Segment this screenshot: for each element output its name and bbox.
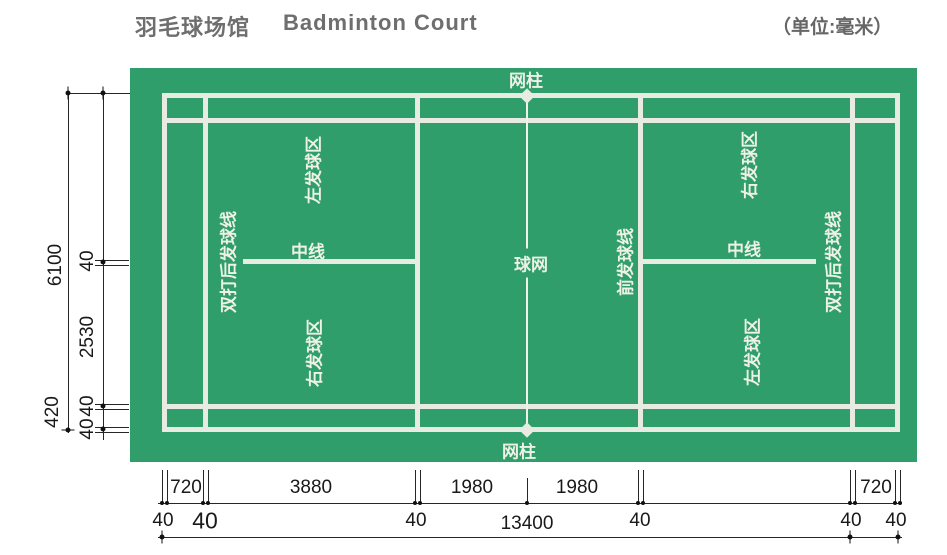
dim-ext-line	[167, 470, 168, 503]
dim-label-40: 40	[629, 510, 650, 532]
unit-label: （单位:毫米）	[772, 12, 892, 39]
net-post-top-label: 网柱	[509, 67, 543, 92]
dim-label-40: 40	[152, 510, 173, 532]
dim-label-720-right: 720	[860, 477, 892, 499]
front-service-line-label: 前发球线	[612, 228, 637, 296]
dim-tick	[418, 501, 422, 505]
dim-tick	[636, 501, 640, 505]
dim-ext-line	[95, 409, 129, 410]
dim-label-40: 40	[885, 510, 906, 532]
dim-label-6100: 6100	[45, 244, 67, 286]
dim-line-left-inner	[103, 93, 104, 440]
zone-top-left-label: 左发球区	[300, 136, 325, 204]
dim-tick	[165, 501, 169, 505]
zone-top-right-label: 右发球区	[736, 131, 761, 199]
dim-label-420: 420	[42, 396, 64, 428]
back-boundary-right	[895, 93, 900, 432]
dim-line-left-outer	[68, 93, 69, 433]
dim-tick	[893, 501, 897, 505]
zone-bottom-right-label: 左发球区	[739, 318, 764, 386]
dim-line-bottom-row1	[158, 503, 902, 504]
dim-tick	[848, 535, 853, 540]
dim-tick	[101, 91, 106, 96]
dim-ext-line	[855, 470, 856, 503]
page-title-en: Badminton Court	[283, 10, 478, 36]
sideline-singles-top	[162, 118, 900, 123]
dim-label-40-center: 40	[77, 250, 99, 271]
dim-tick	[853, 501, 857, 505]
dim-ext-line	[203, 470, 204, 503]
dim-label-40-singles: 40	[77, 395, 99, 416]
dim-tick	[641, 501, 645, 505]
dim-ext-line	[95, 265, 129, 266]
dim-tick	[160, 501, 164, 505]
doubles-long-service-line-left	[203, 93, 208, 432]
dim-label-1980-left: 1980	[451, 477, 493, 499]
dim-tick	[66, 91, 71, 96]
dim-tick	[896, 535, 901, 540]
dim-label-3880: 3880	[290, 477, 332, 499]
dim-tick	[413, 501, 417, 505]
doubles-long-service-right-label: 双打后发球线	[820, 211, 845, 313]
dim-ext-line	[415, 470, 416, 503]
dim-ext-line	[643, 470, 644, 503]
net-label: 球网	[511, 249, 551, 278]
dim-line-bottom-row2	[158, 537, 902, 538]
dim-ext-line-net	[527, 478, 528, 503]
dim-tick	[525, 501, 529, 505]
dim-tick	[101, 427, 106, 432]
back-boundary-left	[162, 93, 167, 432]
short-service-line-left	[415, 93, 420, 432]
dim-tick	[206, 501, 210, 505]
dim-ext-line	[895, 470, 896, 503]
dim-label-2530: 2530	[77, 316, 99, 358]
dim-ext-line	[850, 470, 851, 503]
sideline-singles-bottom	[162, 404, 900, 409]
dim-label-40: 40	[840, 510, 861, 532]
net-post-bottom-label: 网柱	[502, 438, 536, 463]
dim-ext-line	[900, 470, 901, 503]
dim-label-1980-right: 1980	[556, 477, 598, 499]
doubles-long-service-left-label: 双打后发球线	[215, 211, 240, 313]
dim-tick	[898, 501, 902, 505]
dim-ext-line	[162, 470, 163, 503]
page-title-zh: 羽毛球场馆	[135, 10, 250, 42]
dim-tick	[201, 501, 205, 505]
dim-tick	[848, 501, 852, 505]
center-line-right-label: 中线	[727, 236, 761, 261]
dim-ext-line	[208, 470, 209, 503]
dim-tick	[66, 428, 71, 433]
dim-connector-top	[68, 93, 130, 94]
dim-label-40: 40	[405, 510, 426, 532]
dim-tick	[101, 404, 106, 409]
dim-label-720-left: 720	[170, 477, 202, 499]
center-line-left	[243, 259, 415, 264]
doubles-long-service-line-right	[850, 93, 855, 432]
dim-label-40: 40	[192, 508, 218, 535]
dim-tick	[101, 260, 106, 265]
dim-ext-line	[95, 432, 129, 433]
dim-ext-line	[420, 470, 421, 503]
dim-label-13400: 13400	[501, 513, 554, 535]
dim-label-40-outer: 40	[77, 418, 99, 439]
badminton-court-diagram: 羽毛球场馆 Badminton Court （单位:毫米） 网柱 网柱 球网 中…	[0, 0, 947, 555]
center-line-left-label: 中线	[291, 238, 325, 263]
zone-bottom-left-label: 右发球区	[301, 319, 326, 387]
dim-ext-line	[638, 470, 639, 503]
dim-tick	[160, 535, 165, 540]
